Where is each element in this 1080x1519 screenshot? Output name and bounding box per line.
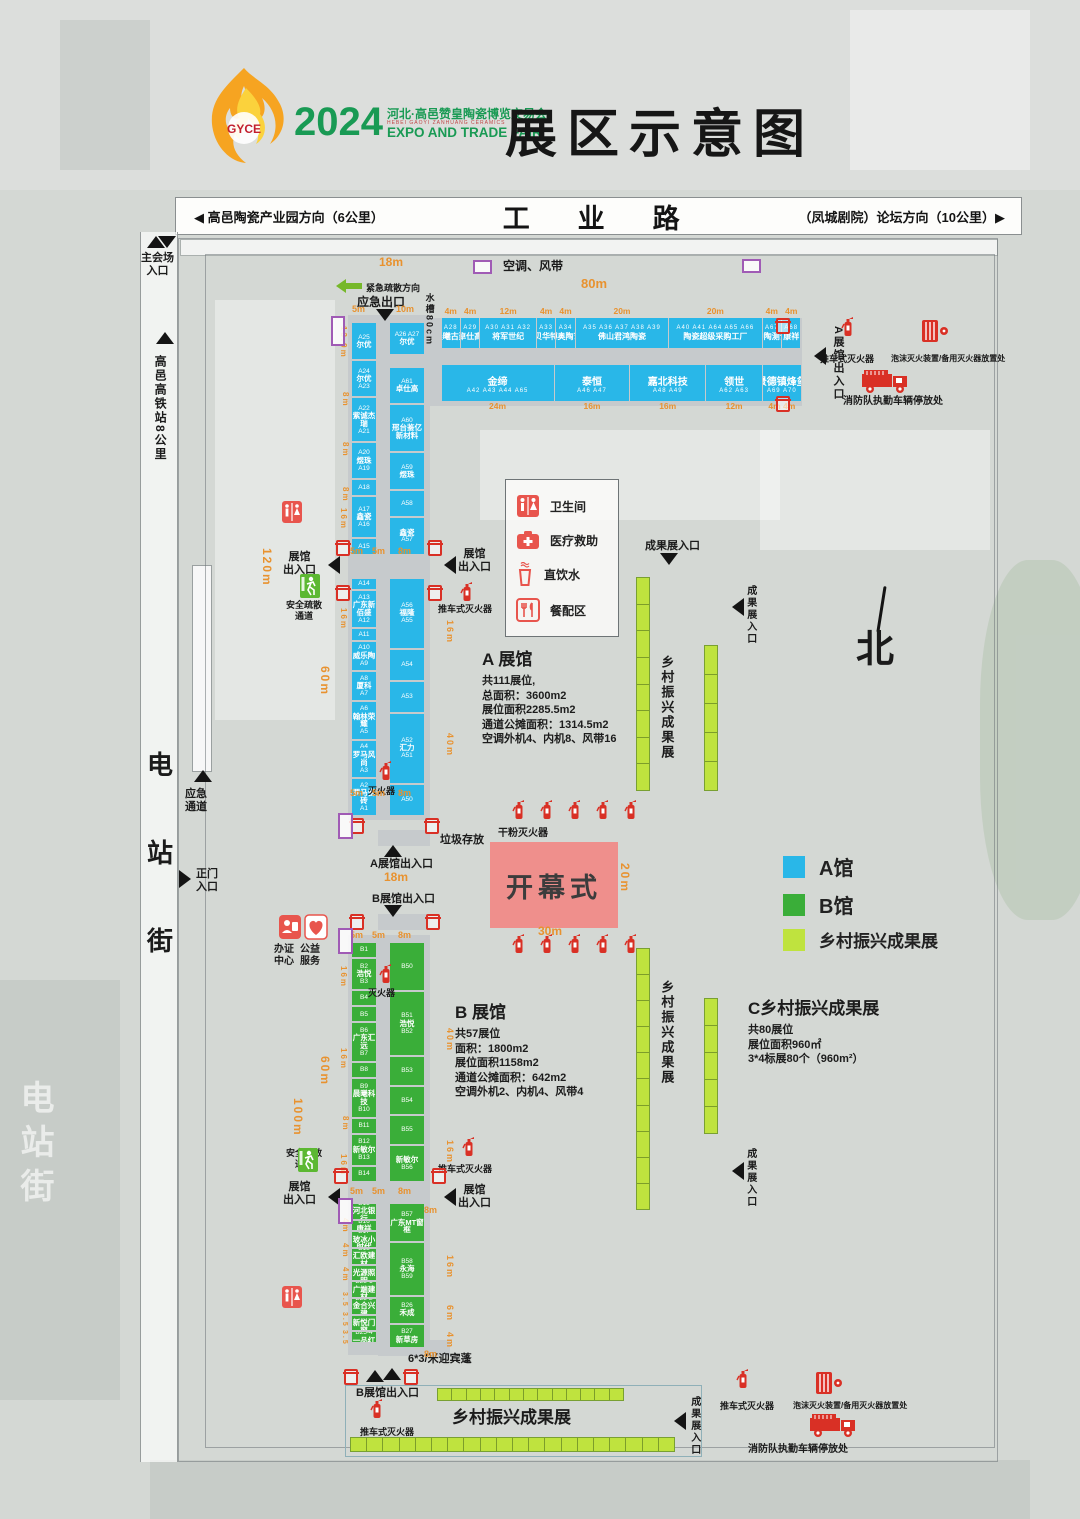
hall-a-left-column-bottom: A14 A13 广东新佰盛 A12 A11 A10 威乐陶 A9 A8 厦科 A… xyxy=(352,578,376,816)
legend-hall-b: B馆 xyxy=(783,890,853,919)
map-label: 乡村振兴成果展 xyxy=(659,980,674,1085)
booth: B54 xyxy=(390,1087,424,1114)
booth-name: 广东汇远 xyxy=(352,1034,376,1050)
booth-id-top: B5 xyxy=(360,1011,368,1018)
booth-name: 康祥 xyxy=(357,1225,372,1230)
rural-exhibit-strip xyxy=(704,998,718,1134)
booth-name: 尔优 xyxy=(357,375,372,383)
booth-width-label: 4m xyxy=(442,306,460,318)
exhibit-cell xyxy=(637,974,649,1000)
booth-width-label: 20m xyxy=(669,306,761,318)
booth: B14 xyxy=(352,1167,376,1181)
foam-hose-reel-icon xyxy=(920,318,950,344)
fire-extinguisher-icon xyxy=(512,799,526,821)
ac-wind-marker xyxy=(338,1198,353,1224)
trash-bin-icon xyxy=(336,585,350,601)
background-street-text: 电站街 xyxy=(10,1080,59,1212)
booth: B8 xyxy=(352,1063,376,1077)
booth: 新敏尔 B56 xyxy=(390,1146,424,1181)
booth: A8 厦科 A7 xyxy=(352,672,376,700)
booth-ids: A62 A63 xyxy=(719,388,749,394)
booth: A11 xyxy=(352,629,376,639)
booth: A6 翰林荣耀 A5 xyxy=(352,702,376,738)
fire-extinguisher-icon xyxy=(596,933,610,955)
measure-label: 6m xyxy=(445,1305,454,1322)
map-label: 紧急疏散方向 xyxy=(366,283,420,294)
measure-label: 40m xyxy=(445,1028,454,1052)
map-label: 主会场 入口 xyxy=(141,252,174,278)
map-label: 推车式灭火器 xyxy=(360,1427,414,1438)
road-left-direction: ◀ 高邑陶瓷产业园方向（6公里） xyxy=(194,207,384,226)
booth-name: 贝华特 xyxy=(537,331,555,342)
booth-id-bottom: A9 xyxy=(360,660,368,667)
trash-bin-icon xyxy=(776,318,790,334)
booth-id-bottom: A5 xyxy=(360,728,368,735)
opening-ceremony-stage: 开幕式 xyxy=(490,842,618,928)
booth-ids: A48 A49 xyxy=(653,388,683,394)
booth: A10 威乐陶 A9 xyxy=(352,642,376,670)
info-line: 3*4标展80个（960m²） xyxy=(748,1052,958,1067)
booth: B11 xyxy=(352,1119,376,1133)
measure-label: 5m xyxy=(350,547,363,556)
map-label: 展馆 出入口 xyxy=(283,1181,316,1207)
exhibit-cell xyxy=(705,1052,717,1079)
logo-acronym: GYCE xyxy=(227,122,261,136)
measure-label: 8m xyxy=(398,789,411,798)
booth-id-top: B54 xyxy=(401,1097,413,1104)
booth: A56 福隆 A55 xyxy=(390,579,424,648)
booth: B57 广东MT窗框 xyxy=(390,1204,424,1241)
booth-name: 景德镇烽玺 xyxy=(763,373,800,388)
exhibit-cell xyxy=(637,1105,649,1131)
booth: A22 紫诚杰瑞 A21 xyxy=(352,398,376,441)
foam-hose-reel-icon xyxy=(814,1370,844,1396)
booth-width-label: 16m xyxy=(630,401,705,413)
booth-name: 一品红 xyxy=(353,1337,376,1342)
booth: B2 浩悦 B3 xyxy=(352,959,376,989)
map-label: 消防队执勤车辆停放处 xyxy=(748,1444,848,1456)
booth-id-top: B1 xyxy=(360,946,368,953)
map-label: 推车式灭火器 xyxy=(720,1401,774,1412)
entrance-triangle xyxy=(383,1368,401,1380)
measure-label: 60m xyxy=(319,666,331,696)
info-line: 空调外机4、内机8、风带16 xyxy=(482,732,672,747)
info-line: 共57展位 xyxy=(455,1027,645,1042)
booth: 16m A46 A47 泰恒 xyxy=(555,365,630,413)
booth-box: A28 晨曦古建 xyxy=(442,318,460,348)
hall-b-left-column-top: B1 B2 浩悦 B3 B4 B5 B6 广东汇远 B7 B8 B9 晨曦科技 … xyxy=(352,942,376,1182)
map-label: 成果展入口 xyxy=(744,1148,756,1208)
legend-swatch-a xyxy=(783,856,805,878)
exhibit-cell xyxy=(637,578,649,604)
booth-id-top: A14 xyxy=(358,580,370,587)
facility-drinking-water: 直饮水 xyxy=(516,562,608,586)
measure-label: 8m xyxy=(398,931,411,940)
hall-a-right-column-top: A26 A27 尔优 A61 卓仕高 A60 邢台鉴亿新材料 A59 煜珠 A5… xyxy=(390,322,424,555)
gate-block xyxy=(378,830,430,846)
booth-id-bottom: B3 xyxy=(360,978,368,985)
booth-id-bottom: B10 xyxy=(358,1106,370,1113)
booth-width-label: 12m xyxy=(706,401,762,413)
booth: B18 汇欧建材 xyxy=(352,1249,376,1264)
booth-id-top: B11 xyxy=(358,1122,369,1129)
facilities-legend: 卫生间 医疗救助 直饮水 餐配区 xyxy=(505,479,619,637)
map-label: 推车式灭火器 xyxy=(438,1164,492,1175)
measure-label: 8m xyxy=(341,442,349,458)
trash-bin-icon xyxy=(344,1369,358,1385)
measure-label: 120m xyxy=(261,548,273,587)
exhibit-cell xyxy=(637,1131,649,1157)
booth-name: 永海 xyxy=(400,1265,415,1273)
trash-bin-icon xyxy=(776,396,790,412)
legend-swatch-rural xyxy=(783,929,805,951)
booth-ids: A69 A70 xyxy=(767,388,797,394)
booth-name: 尔优 xyxy=(400,338,415,346)
legend-hall-a: A馆 xyxy=(783,852,853,881)
industrial-road: ◀ 高邑陶瓷产业园方向（6公里） 工业路 （凤城剧院）论坛方向（10公里）▶ xyxy=(175,197,1022,235)
background-block xyxy=(150,1460,1030,1519)
booth-name: 晨曦科技 xyxy=(352,1090,376,1106)
booth-id-bottom: A23 xyxy=(358,383,370,390)
booth: B6 广东汇远 B7 xyxy=(352,1023,376,1061)
map-label: 展馆 出入口 xyxy=(458,548,491,574)
fire-extinguisher-icon xyxy=(841,316,855,338)
restroom-icon xyxy=(281,1285,303,1309)
booth: 20m A35 A36 A37 A38 A39 佛山君鸿陶瓷 xyxy=(576,306,668,348)
booth: A60 邢台鉴亿新材料 xyxy=(390,405,424,451)
booth-name: 卓仕高 xyxy=(396,385,419,393)
booth-id-bottom: A1 xyxy=(360,805,368,812)
map-label: 空调、风带 xyxy=(503,259,563,273)
booth-name: 新敏尔 xyxy=(353,1146,376,1154)
ac-wind-marker xyxy=(338,928,353,954)
hall-c-info: C乡村振兴成果展 共80展位展位面积960㎡3*4标展80个（960m²） xyxy=(748,994,958,1067)
measure-label: 5m xyxy=(372,547,385,556)
fire-extinguisher-icon xyxy=(596,799,610,821)
booth: A17 鑫瓷 A16 xyxy=(352,497,376,537)
measure-label: 16m xyxy=(445,1255,454,1279)
booth-id-bottom: B56 xyxy=(401,1164,413,1171)
booth-id-bottom: A55 xyxy=(401,617,413,624)
booth: A18 xyxy=(352,480,376,495)
measure-label: 8m xyxy=(398,547,411,556)
evacuation-arrow-icon xyxy=(336,279,362,293)
measure-label: 20m xyxy=(619,863,631,893)
first-aid-icon xyxy=(516,530,540,550)
booth-name: 浩悦 xyxy=(400,1020,415,1028)
exhibit-cell xyxy=(637,604,649,631)
booth-width-label: 4m xyxy=(537,306,555,318)
booth-name: 博奥陶艺 xyxy=(556,331,574,342)
booth: B19 光源照明 xyxy=(352,1266,376,1281)
measure-label: 3.5 xyxy=(341,1312,348,1328)
map-label: 泡沫灭火装置/备用灭火器放置处 xyxy=(793,1401,907,1410)
booth: 20m A40 A41 A64 A65 A66 陶瓷超级采购工厂 xyxy=(669,306,761,348)
charity-heart-icon xyxy=(304,914,328,940)
info-line: 展位面积1158m2 xyxy=(455,1056,645,1071)
measure-label: 40m xyxy=(445,733,454,757)
booth-id-bottom: B13 xyxy=(358,1154,370,1161)
trash-bin-icon xyxy=(432,1168,446,1184)
booth-name: 金缔 xyxy=(488,373,508,388)
booth-name: 邢台鉴亿新材料 xyxy=(390,424,424,440)
booth: B55 xyxy=(390,1116,424,1143)
exhibit-cell xyxy=(705,1025,717,1052)
booth-id-top: A11 xyxy=(358,631,369,638)
entrance-triangle xyxy=(674,1412,686,1430)
facility-label: 直饮水 xyxy=(544,566,580,583)
fire-extinguisher-icon xyxy=(624,799,638,821)
booth: A26 A27 尔优 xyxy=(390,323,424,354)
booth: A4 罗马风尚 A3 xyxy=(352,741,376,777)
booth: B58 永海 B59 xyxy=(390,1243,424,1294)
measure-label: 16m xyxy=(339,608,347,630)
measure-label: 5m xyxy=(372,1187,385,1196)
booth-width-label: 24m xyxy=(442,401,554,413)
brand-year: 2024 xyxy=(294,104,383,140)
map-label: 街 xyxy=(147,926,173,957)
booth-box: A40 A41 A64 A65 A66 陶瓷超级采购工厂 xyxy=(669,318,761,348)
trash-bin-icon xyxy=(404,1369,418,1385)
hall-a-info-title: A 展馆 xyxy=(482,645,672,670)
ac-wind-marker xyxy=(331,316,345,346)
info-line: 共80展位 xyxy=(748,1023,958,1038)
booth-name: 威乐陶 xyxy=(353,652,376,660)
booth-box: A34 博奥陶艺 xyxy=(556,318,574,348)
booth: A54 xyxy=(390,650,424,680)
hall-b-right-column-bottom: B57 广东MT窗框 B58 永海 B59 B26 禾成 B27 新草房 xyxy=(390,1203,424,1348)
booth-name: 光源照明 xyxy=(352,1269,376,1280)
facility-label: 卫生间 xyxy=(550,498,586,515)
exhibit-cell xyxy=(705,732,717,761)
entrance-triangle xyxy=(366,1370,384,1382)
booth: 4m A33 贝华特 xyxy=(537,306,555,348)
measure-label: 8m xyxy=(424,1350,437,1359)
hall-b-right-column-top: B50 B51 浩悦 B52 B53 B54 B55 新敏尔 B56 xyxy=(390,942,424,1182)
booth: A58 xyxy=(390,491,424,516)
map-label: 6*3/米迎宾蓬 xyxy=(408,1353,472,1366)
booth-box: A42 A43 A44 A65 金缔 xyxy=(442,365,554,401)
hall-b-info-title: B 展馆 xyxy=(455,998,645,1023)
map-label: 成果展入口 xyxy=(645,540,700,553)
booth: A59 煜珠 xyxy=(390,453,424,489)
drinking-water-icon xyxy=(516,562,534,586)
hall-b-info-lines: 共57展位面积：1800m2展位面积1158m2通道公摊面积：642m2空调外机… xyxy=(455,1027,645,1100)
ac-wind-marker xyxy=(473,260,492,274)
booth: 12m A62 A63 领世 xyxy=(706,365,762,413)
exhibit-cell xyxy=(705,761,717,790)
measure-label: 16m xyxy=(445,620,454,644)
booth-box: A46 A47 泰恒 xyxy=(555,365,630,401)
entrance-triangle xyxy=(814,347,826,365)
booth-id-top: B4 xyxy=(360,994,368,1001)
booth-id-bottom: B7 xyxy=(360,1050,368,1057)
measure-label: 5m xyxy=(352,305,365,314)
road-right-direction: （凤城剧院）论坛方向（10公里）▶ xyxy=(799,207,1005,226)
map-label: 灭火器 xyxy=(368,988,395,999)
map-label: 推车式灭火器 xyxy=(820,354,874,365)
entrance-triangle xyxy=(179,870,191,888)
exhibit-cell xyxy=(705,999,717,1025)
info-line: 空调外机2、内机4、风带4 xyxy=(455,1085,645,1100)
map-label: 应急 通道 xyxy=(185,788,207,814)
booth-name: 福隆 xyxy=(400,609,415,617)
trash-bin-icon xyxy=(428,540,442,556)
booth-name: 新敏尔 xyxy=(396,1156,419,1164)
map-label: B展馆出入口 xyxy=(356,1387,419,1400)
info-line: 通道公摊面积：642m2 xyxy=(455,1071,645,1086)
booth-box: A29 卓仕高 xyxy=(461,318,479,348)
map-label: 乡村振兴成果展 xyxy=(659,655,674,760)
booth-name: 煜珠 xyxy=(400,471,415,479)
booth-name: 玻冰小时代 xyxy=(352,1236,376,1247)
booth-id-top: B50 xyxy=(401,963,413,970)
booth-id-top: A54 xyxy=(401,661,413,668)
map-label: 垃圾存放 xyxy=(440,834,484,847)
facility-first-aid: 医疗救助 xyxy=(516,530,608,550)
entrance-triangle xyxy=(328,556,340,574)
booth: B26 禾成 xyxy=(390,1297,424,1323)
booth xyxy=(390,356,424,366)
map-label: 成果展入口 xyxy=(688,1396,700,1456)
measure-label: 5m xyxy=(372,931,385,940)
facility-label: 餐配区 xyxy=(550,602,586,619)
booth-box: A35 A36 A37 A38 A39 佛山君鸿陶瓷 xyxy=(576,318,668,348)
booth-name: 晨曦古建 xyxy=(442,331,460,342)
measure-label: 16m xyxy=(339,508,347,530)
booth: B15 河北银行 xyxy=(352,1204,376,1219)
hall-a-top-row1: 4m A28 晨曦古建 4m A29 卓仕高 12m A30 A31 A32 将… xyxy=(441,306,801,348)
restroom-icon xyxy=(281,500,303,524)
background-block xyxy=(850,10,1030,170)
booth-name: 卓仕高 xyxy=(461,331,479,342)
booth: A24 尔优 A23 xyxy=(352,361,376,396)
facility-restroom: 卫生间 xyxy=(516,494,608,518)
safety-exit-icon xyxy=(297,1147,319,1173)
dining-icon xyxy=(516,598,540,622)
legend-label-rural: 乡村振兴成果展 xyxy=(819,927,938,952)
measure-label: 10m xyxy=(396,305,414,314)
info-line: 展位面积960㎡ xyxy=(748,1038,958,1053)
booth: 4m A29 卓仕高 xyxy=(461,306,479,348)
measure-label: 16m xyxy=(339,966,347,988)
legend-rural: 乡村振兴成果展 xyxy=(783,927,938,952)
map-label: 泡沫灭火装置/备用灭火器放置处 xyxy=(891,354,1005,363)
booth: B25-4 一品红 xyxy=(352,1332,376,1342)
legend-swatch-b xyxy=(783,894,805,916)
entrance-triangle xyxy=(384,845,402,857)
exhibit-cell xyxy=(637,1157,649,1183)
hall-b-left-column-bottom: B15 河北银行 B16 康祥 B17 玻冰小时代 B18 汇欧建材 B19 光… xyxy=(352,1203,376,1343)
booth: 24m A42 A43 A44 A65 金缔 xyxy=(442,365,554,413)
booth: B17 玻冰小时代 xyxy=(352,1232,376,1247)
booth-ids: A42 A43 A44 A65 xyxy=(467,388,529,394)
booth-id-top: A18 xyxy=(358,484,370,491)
booth-name: 禾成 xyxy=(400,1309,415,1317)
hall-a-top-row2: 24m A42 A43 A44 A65 金缔 16m A46 A47 泰恒 16… xyxy=(441,365,801,413)
booth: 4m A34 博奥陶艺 xyxy=(556,306,574,348)
booth-id-bottom: A16 xyxy=(358,521,370,528)
booth-id-top: B53 xyxy=(401,1067,413,1074)
fire-extinguisher-icon xyxy=(379,760,393,782)
exhibit-cell xyxy=(705,703,717,732)
booth-id-bottom: B59 xyxy=(401,1273,413,1280)
ac-wind-marker xyxy=(338,813,353,839)
hall-b-info: B 展馆 共57展位面积：1800m2展位面积1158m2通道公摊面积：642m… xyxy=(455,998,645,1100)
facility-dining: 餐配区 xyxy=(516,598,608,622)
booth-id-top: A53 xyxy=(401,693,413,700)
entrance-triangle xyxy=(194,770,212,782)
ac-wind-marker xyxy=(742,259,761,273)
booth-name: 鑫瓷 xyxy=(400,529,415,537)
trash-bin-icon xyxy=(428,585,442,601)
booth: 16m A48 A49 嘉北科技 xyxy=(630,365,705,413)
map-label: B展馆出入口 xyxy=(372,893,435,906)
fire-extinguisher-icon xyxy=(540,933,554,955)
measure-label: 8m xyxy=(424,1206,437,1215)
info-line: 总面积：3600m2 xyxy=(482,689,672,704)
fire-extinguisher-icon xyxy=(624,933,638,955)
badge-center-icon xyxy=(278,914,302,940)
booth-name: 汇力 xyxy=(400,744,415,752)
booth: A20 煜珠 A19 xyxy=(352,443,376,478)
background-block xyxy=(60,20,150,170)
measure-label: 18m xyxy=(384,871,408,883)
booth-width-label: 16m xyxy=(555,401,630,413)
measure-label: 8m xyxy=(398,1187,411,1196)
booth: A13 广东新佰盛 A12 xyxy=(352,591,376,627)
exhibit-cell xyxy=(705,674,717,703)
measure-label: 5m xyxy=(350,789,363,798)
booth-id-top: B8 xyxy=(360,1066,368,1073)
fire-extinguisher-icon xyxy=(540,799,554,821)
booth-id-bottom: A21 xyxy=(358,428,370,435)
booth-name: 将军世纪 xyxy=(492,331,524,342)
info-line: 通道公摊面积：1314.5m2 xyxy=(482,718,672,733)
flame-logo: GYCE xyxy=(196,66,292,166)
booth-name: 嘉北科技 xyxy=(648,373,688,388)
booth-name: 佛山君鸿陶瓷 xyxy=(598,331,646,342)
booth-name: 河北银行 xyxy=(352,1207,376,1218)
exhibit-cell xyxy=(705,1106,717,1133)
exhibit-cell xyxy=(705,646,717,674)
measure-label: 80m xyxy=(581,277,607,290)
booth-name: 鑫瓷 xyxy=(357,513,372,521)
rural-exhibit-strip xyxy=(704,645,718,791)
map-label: 水槽80cm xyxy=(424,293,435,346)
fire-extinguisher-icon xyxy=(379,963,393,985)
info-line: 面积：1800m2 xyxy=(455,1042,645,1057)
map-label: 乡村振兴成果展 xyxy=(452,1408,571,1428)
entrance-triangle xyxy=(444,556,456,574)
booth-width-label: 4m xyxy=(782,306,800,318)
map-label: 站 xyxy=(147,838,173,869)
booth: 4m A28 晨曦古建 xyxy=(442,306,460,348)
entrance-triangle xyxy=(444,1188,456,1206)
booth: B25-1 广端建材 xyxy=(352,1282,376,1297)
booth-name: 广东新佰盛 xyxy=(352,601,376,617)
exhibit-cell xyxy=(637,949,649,974)
fire-extinguisher-icon xyxy=(512,933,526,955)
info-line: 展位面积2285.5m2 xyxy=(482,703,672,718)
fire-truck-icon xyxy=(860,366,912,396)
map-label: 公益 服务 xyxy=(300,944,320,968)
road-name: 工业路 xyxy=(455,197,728,236)
hall-a-info-lines: 共111展位,总面积：3600m2展位面积2285.5m2通道公摊面积：1314… xyxy=(482,674,672,747)
booth: A61 卓仕高 xyxy=(390,368,424,404)
hall-a-right-column-bottom: A56 福隆 A55 A54 A53 A52 汇力 A51 A50 xyxy=(390,578,424,816)
booth-box: A62 A63 领世 xyxy=(706,365,762,401)
